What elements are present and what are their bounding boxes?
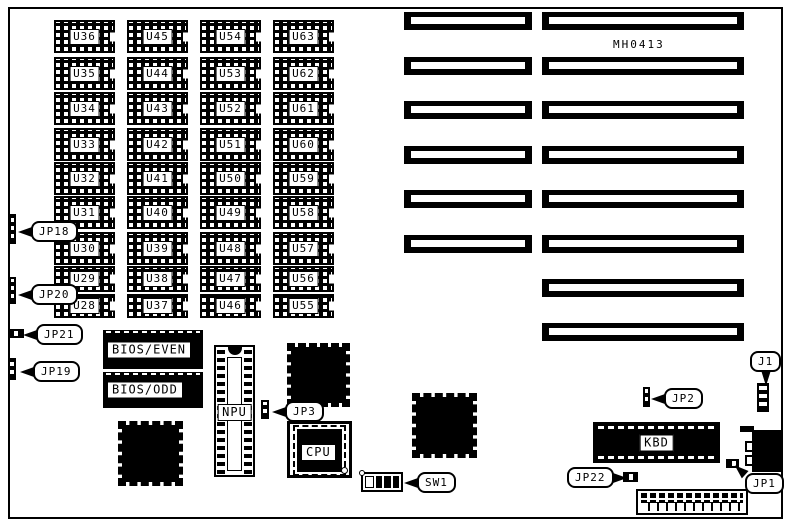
chip-notch — [183, 302, 188, 311]
dip-memory-chip: U47 — [200, 266, 261, 292]
chip-label: U58 — [288, 205, 319, 221]
bios-odd-chip: BIOS/ODD — [103, 372, 203, 408]
expansion-slot-segment — [542, 101, 744, 119]
chip-notch — [110, 208, 115, 217]
chip-notch — [329, 208, 334, 217]
dip-memory-chip: U53 — [200, 57, 261, 90]
chip-notch — [329, 32, 334, 41]
jp18-callout-label: JP18 — [31, 221, 78, 242]
chip-label: U50 — [215, 171, 246, 187]
chip-label: U51 — [215, 137, 246, 153]
chip-label: U52 — [215, 101, 246, 117]
dip-memory-chip: U46 — [200, 294, 261, 318]
dip-memory-chip: U34 — [54, 92, 115, 125]
expansion-slot-segment — [542, 12, 744, 30]
dip-memory-chip: U37 — [127, 294, 188, 318]
dip-switch-cell — [393, 476, 400, 488]
dip-memory-chip: U54 — [200, 20, 261, 53]
dip-memory-chip: U58 — [273, 196, 334, 229]
jp18-callout-pointer — [18, 227, 32, 237]
chip-label: U37 — [142, 298, 173, 314]
dip-memory-chip: U55 — [273, 294, 334, 318]
chip-notch — [183, 104, 188, 113]
chip-label: U46 — [215, 298, 246, 314]
expansion-slot-segment — [542, 190, 744, 208]
dip-memory-chip: U32 — [54, 162, 115, 195]
chip-notch — [183, 208, 188, 217]
dip-memory-chip: U50 — [200, 162, 261, 195]
chip-label: U61 — [288, 101, 319, 117]
chip-notch — [110, 140, 115, 149]
j1-jumper-block — [757, 383, 769, 412]
jp3-callout-pointer — [272, 407, 286, 417]
expansion-slot-segment — [542, 279, 744, 297]
chip-notch — [110, 32, 115, 41]
dip-memory-chip: U44 — [127, 57, 188, 90]
chip-notch — [183, 174, 188, 183]
dip-memory-chip: U39 — [127, 232, 188, 265]
dip-memory-chip: U38 — [127, 266, 188, 292]
expansion-slot-segment — [404, 146, 532, 164]
jp18-jumper-block — [9, 214, 16, 244]
chip-label: U48 — [215, 241, 246, 257]
chip-label: U33 — [69, 137, 100, 153]
power-connector — [636, 489, 748, 515]
npu-notch — [228, 347, 242, 355]
dip-switch-cell — [376, 476, 383, 488]
chip-label: U59 — [288, 171, 319, 187]
chip-notch — [329, 140, 334, 149]
keyboard-connector-pin — [745, 441, 754, 452]
chip-label: U63 — [288, 29, 319, 45]
expansion-slot-segment — [404, 190, 532, 208]
chip-label: U45 — [142, 29, 173, 45]
jp20-callout-label: JP20 — [31, 284, 78, 305]
qfp-chip — [287, 343, 350, 407]
chip-notch — [329, 302, 334, 311]
dip-memory-chip: U41 — [127, 162, 188, 195]
chip-label: U62 — [288, 66, 319, 82]
sw1-callout-pointer — [404, 478, 418, 488]
chip-notch — [183, 32, 188, 41]
dip-memory-chip: U61 — [273, 92, 334, 125]
j1-callout-pointer — [761, 370, 771, 386]
chip-label: U31 — [69, 205, 100, 221]
jp22-callout-label: JP22 — [567, 467, 614, 488]
chip-label: U38 — [142, 271, 173, 287]
chip-label: U42 — [142, 137, 173, 153]
chip-notch — [183, 275, 188, 284]
expansion-slot-segment — [404, 101, 532, 119]
qfp-chip — [412, 393, 477, 458]
keyboard-connector-pin — [745, 455, 754, 466]
jp2-callout-pointer — [651, 394, 665, 404]
chip-notch — [183, 244, 188, 253]
jp21-callout-pointer — [23, 330, 37, 340]
chip-label: U56 — [288, 271, 319, 287]
jp21-jumper-block — [8, 329, 24, 338]
chip-notch — [183, 69, 188, 78]
dip-memory-chip: U52 — [200, 92, 261, 125]
chip-label: U49 — [215, 205, 246, 221]
jp2-jumper-block — [643, 387, 650, 407]
chip-label: U53 — [215, 66, 246, 82]
npu-label: NPU — [217, 404, 252, 421]
cpu-label: CPU — [301, 444, 336, 461]
chip-label: U40 — [142, 205, 173, 221]
chip-label: U30 — [69, 241, 100, 257]
power-connector-pins — [641, 493, 743, 498]
dip-memory-chip: U33 — [54, 128, 115, 161]
chip-notch — [110, 174, 115, 183]
chip-notch — [329, 275, 334, 284]
chip-notch — [256, 32, 261, 41]
chip-label: U34 — [69, 101, 100, 117]
dip-memory-chip: U57 — [273, 232, 334, 265]
kbd-controller-chip: KBD — [593, 422, 720, 463]
chip-label: U39 — [142, 241, 173, 257]
jp3-jumper-block — [261, 400, 269, 419]
chip-label: U60 — [288, 137, 319, 153]
motherboard-diagram: MH0413 BIOS/EVEN BIOS/ODD NPU CPU KBD — [0, 0, 791, 527]
expansion-slot-segment — [404, 12, 532, 30]
chip-label: U43 — [142, 101, 173, 117]
chip-label: U41 — [142, 171, 173, 187]
dip-switch-cell — [365, 476, 374, 488]
bios-even-chip: BIOS/EVEN — [103, 330, 203, 369]
chip-notch — [329, 69, 334, 78]
jp22-callout-pointer — [613, 473, 627, 483]
expansion-slot-segment — [542, 235, 744, 253]
chip-notch — [110, 302, 115, 311]
dip-memory-chip: U49 — [200, 196, 261, 229]
chip-label: U36 — [69, 29, 100, 45]
expansion-slot-segment — [542, 146, 744, 164]
power-connector-sockets — [641, 502, 743, 511]
dip-memory-chip: U45 — [127, 20, 188, 53]
jp20-jumper-block — [9, 277, 16, 304]
chip-notch — [256, 208, 261, 217]
chip-label: U44 — [142, 66, 173, 82]
kbd-label: KBD — [639, 434, 674, 451]
expansion-slot-segment — [542, 323, 744, 341]
chip-notch — [110, 244, 115, 253]
dip-memory-chip: U35 — [54, 57, 115, 90]
cpu-socket: CPU — [287, 421, 352, 478]
chip-label: U57 — [288, 241, 319, 257]
jp21-callout-label: JP21 — [36, 324, 83, 345]
dip-memory-chip: U60 — [273, 128, 334, 161]
expansion-slot-segment — [542, 57, 744, 75]
chip-label: U35 — [69, 66, 100, 82]
chip-notch — [256, 244, 261, 253]
sw1-dip-switch — [361, 472, 403, 492]
chip-notch — [110, 275, 115, 284]
chip-label: U32 — [69, 171, 100, 187]
chip-notch — [256, 174, 261, 183]
qfp-chip — [118, 421, 183, 486]
chip-notch — [256, 302, 261, 311]
expansion-slot-segment — [404, 57, 532, 75]
dip-memory-chip: U36 — [54, 20, 115, 53]
orientation-dot — [359, 470, 365, 476]
jp1-callout-label: JP1 — [745, 473, 784, 494]
dip-memory-chip: U62 — [273, 57, 334, 90]
chip-notch — [256, 140, 261, 149]
dip-memory-chip: U43 — [127, 92, 188, 125]
chip-label: U55 — [288, 298, 319, 314]
chip-notch — [110, 69, 115, 78]
chip-notch — [256, 104, 261, 113]
dip-memory-chip: U42 — [127, 128, 188, 161]
expansion-slot-segment — [404, 235, 532, 253]
chip-notch — [329, 244, 334, 253]
jp19-callout-label: JP19 — [33, 361, 80, 382]
dip-switch-cell — [384, 476, 391, 488]
chip-label: U54 — [215, 29, 246, 45]
jp19-callout-pointer — [20, 367, 34, 377]
keyboard-connector-mount — [740, 426, 754, 432]
dip-memory-chip: U59 — [273, 162, 334, 195]
dip-memory-chip: U51 — [200, 128, 261, 161]
board-part-number: MH0413 — [613, 38, 665, 51]
bios-even-label: BIOS/EVEN — [107, 341, 191, 358]
pin1-dot — [341, 467, 348, 474]
chip-notch — [329, 174, 334, 183]
chip-notch — [110, 104, 115, 113]
jp2-callout-label: JP2 — [664, 388, 703, 409]
dip-memory-chip: U48 — [200, 232, 261, 265]
sw1-callout-label: SW1 — [417, 472, 456, 493]
jp20-callout-pointer — [18, 290, 32, 300]
chip-notch — [183, 140, 188, 149]
jp3-callout-label: JP3 — [285, 401, 324, 422]
chip-notch — [256, 275, 261, 284]
chip-notch — [256, 69, 261, 78]
keyboard-din-connector — [752, 430, 783, 472]
chip-notch — [329, 104, 334, 113]
j1-callout-label: J1 — [750, 351, 781, 372]
dip-memory-chip: U56 — [273, 266, 334, 292]
npu-socket: NPU — [214, 345, 255, 477]
chip-label: U47 — [215, 271, 246, 287]
jp19-jumper-block — [8, 358, 16, 380]
dip-memory-chip: U63 — [273, 20, 334, 53]
dip-memory-chip: U40 — [127, 196, 188, 229]
bios-odd-label: BIOS/ODD — [107, 382, 183, 399]
